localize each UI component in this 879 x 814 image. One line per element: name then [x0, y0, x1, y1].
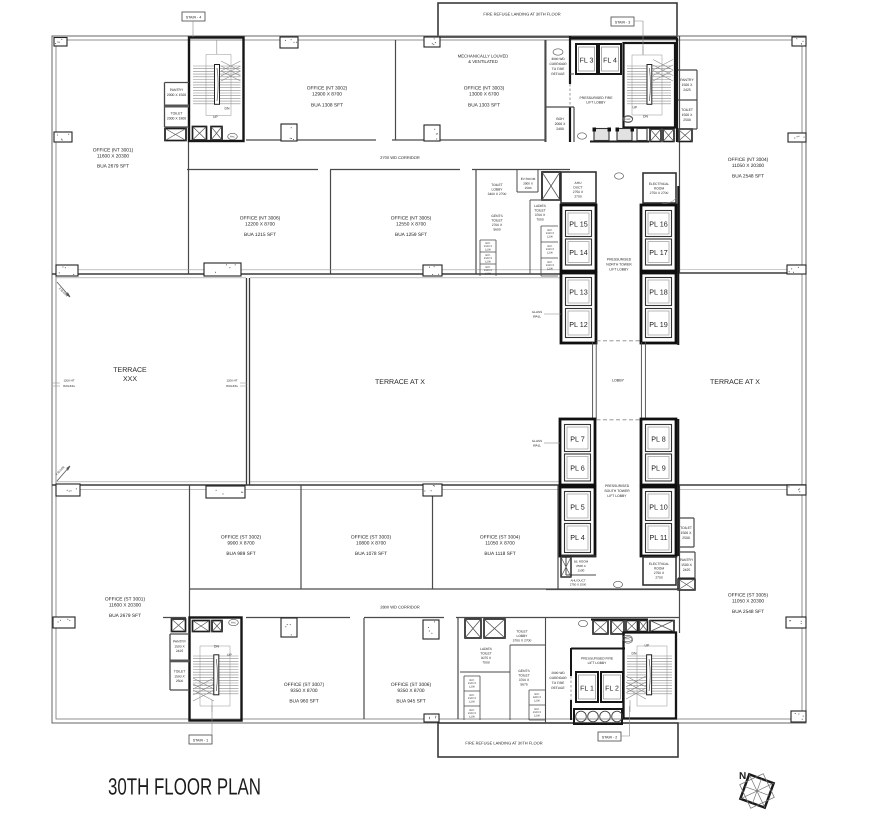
- svg-text:1200: 1200: [485, 260, 491, 263]
- svg-text:TOILET: TOILET: [491, 219, 502, 223]
- svg-text:PANTRY: PANTRY: [173, 640, 187, 644]
- svg-text:FL 4: FL 4: [603, 58, 617, 65]
- svg-text:1200: 1200: [547, 235, 553, 238]
- svg-text:PRESSURISED: PRESSURISED: [605, 484, 630, 488]
- svg-text:LOBBY: LOBBY: [612, 379, 625, 383]
- svg-text:OFFICE (NT 3004): OFFICE (NT 3004): [728, 157, 769, 163]
- svg-text:2700 WD CORRIDOR: 2700 WD CORRIDOR: [380, 155, 420, 160]
- svg-text:UP: UP: [645, 644, 650, 648]
- svg-text:LIFT LOBBY: LIFT LOBBY: [607, 494, 627, 498]
- svg-text:TOILET: TOILET: [680, 526, 692, 530]
- svg-text:3075 X: 3075 X: [481, 656, 492, 660]
- svg-text:MECHANICALLY LOUVED: MECHANICALLY LOUVED: [458, 54, 509, 59]
- svg-text:1500: 1500: [578, 569, 585, 573]
- svg-text:1200: 1200: [534, 714, 540, 717]
- svg-text:PL 5: PL 5: [570, 503, 585, 512]
- svg-text:OFFICE (ST 3003): OFFICE (ST 3003): [351, 535, 392, 541]
- svg-text:DN: DN: [225, 107, 230, 111]
- svg-text:BUA 989 SFT: BUA 989 SFT: [226, 551, 255, 557]
- svg-text:1500 X: 1500 X: [682, 113, 693, 117]
- svg-text:2800 WD CORRIDOR: 2800 WD CORRIDOR: [380, 605, 420, 610]
- svg-text:BUA 945 SFT: BUA 945 SFT: [396, 699, 425, 705]
- svg-text:PRESSURISED FIRE: PRESSURISED FIRE: [580, 96, 614, 100]
- svg-text:LIFT LOBBY: LIFT LOBBY: [609, 268, 629, 272]
- svg-text:1200 HT: 1200 HT: [226, 379, 237, 383]
- svg-text:PL 19: PL 19: [649, 320, 668, 329]
- svg-text:DN: DN: [643, 115, 648, 119]
- svg-text:1500 X: 1500 X: [174, 674, 185, 678]
- svg-text:1500 X: 1500 X: [174, 644, 185, 648]
- svg-text:GENTS: GENTS: [491, 214, 503, 218]
- svg-text:STAIR - 4: STAIR - 4: [186, 16, 202, 20]
- svg-text:WALL: WALL: [533, 444, 542, 448]
- svg-text:PL 15: PL 15: [569, 220, 588, 229]
- svg-text:BUA 1118 SFT: BUA 1118 SFT: [484, 551, 515, 557]
- svg-text:PL 7: PL 7: [570, 435, 585, 444]
- svg-text:AHU: AHU: [575, 181, 583, 185]
- svg-text:11050 X 8700: 11050 X 8700: [485, 541, 515, 547]
- svg-text:N: N: [739, 771, 746, 782]
- svg-text:2500: 2500: [682, 536, 690, 540]
- svg-text:UP: UP: [227, 653, 232, 657]
- svg-text:BUA 2548 SFT: BUA 2548 SFT: [732, 174, 764, 180]
- svg-text:1200: 1200: [547, 251, 553, 254]
- svg-text:2425: 2425: [683, 568, 691, 572]
- svg-text:FHC: FHC: [626, 118, 631, 121]
- svg-text:11600 X 20300: 11600 X 20300: [109, 603, 142, 609]
- svg-text:TOILET: TOILET: [491, 183, 502, 187]
- svg-text:XXX: XXX: [123, 376, 137, 383]
- svg-text:2750 X 1500: 2750 X 1500: [570, 583, 587, 587]
- svg-text:OFFICE (ST 3004): OFFICE (ST 3004): [480, 535, 521, 541]
- svg-text:OFFICE (ST 3006): OFFICE (ST 3006): [391, 682, 432, 688]
- svg-text:LOBBY: LOBBY: [492, 188, 504, 192]
- svg-text:OFFICE (NT 3005): OFFICE (NT 3005): [391, 216, 432, 222]
- svg-text:2400: 2400: [556, 127, 564, 131]
- svg-text:PL 10: PL 10: [649, 503, 668, 512]
- svg-text:2425: 2425: [683, 88, 691, 92]
- svg-text:BUA 1215 SFT: BUA 1215 SFT: [244, 232, 276, 238]
- svg-text:ELECTRICAL: ELECTRICAL: [649, 562, 670, 566]
- svg-text:9350 X 8700: 9350 X 8700: [397, 688, 425, 694]
- svg-text:FIRE REFUGE LANDING AT 30TH F: FIRE REFUGE LANDING AT 30TH FLOOR: [465, 741, 542, 746]
- svg-text:3000 X: 3000 X: [523, 182, 533, 186]
- svg-text:TOILET: TOILET: [174, 670, 185, 674]
- svg-text:UP: UP: [633, 106, 638, 110]
- svg-text:PL 13: PL 13: [569, 288, 588, 297]
- svg-text:2500: 2500: [683, 118, 691, 122]
- svg-text:3000 WD: 3000 WD: [551, 57, 565, 61]
- svg-text:PANTRY: PANTRY: [170, 88, 184, 92]
- svg-text:1200: 1200: [469, 685, 475, 688]
- svg-text:BUA 2679 SFT: BUA 2679 SFT: [97, 164, 129, 170]
- svg-text:RAILING: RAILING: [63, 384, 75, 388]
- svg-text:12900 X 8700: 12900 X 8700: [312, 92, 342, 98]
- svg-text:PL 16: PL 16: [649, 220, 668, 229]
- svg-text:TOILET: TOILET: [534, 209, 545, 213]
- svg-text:LADIES: LADIES: [480, 647, 493, 651]
- svg-text:3700 X 2700: 3700 X 2700: [513, 639, 532, 643]
- svg-text:UP: UP: [213, 115, 218, 119]
- svg-text:12550 X 8700: 12550 X 8700: [396, 222, 426, 228]
- svg-text:TOILET: TOILET: [518, 674, 529, 678]
- svg-text:PANTRY: PANTRY: [680, 78, 694, 82]
- svg-text:BUA 1078 SFT: BUA 1078 SFT: [355, 551, 387, 557]
- svg-text:9350 X 8700: 9350 X 8700: [290, 688, 318, 694]
- svg-text:FHC: FHC: [230, 136, 235, 139]
- svg-text:30TH FLOOR PLAN: 30TH FLOOR PLAN: [108, 774, 261, 800]
- svg-text:12200 X 8700: 12200 X 8700: [245, 222, 275, 228]
- svg-text:TO FIRE: TO FIRE: [552, 67, 565, 71]
- svg-text:EV ROOM: EV ROOM: [521, 177, 536, 181]
- svg-text:PL 14: PL 14: [569, 248, 588, 257]
- svg-text:FHC: FHC: [625, 638, 630, 641]
- svg-text:2700 X: 2700 X: [492, 223, 503, 227]
- svg-text:BUA 1259 SFT: BUA 1259 SFT: [395, 232, 427, 238]
- svg-text:CORRIDOR: CORRIDOR: [549, 676, 567, 680]
- svg-text:PANTRY: PANTRY: [680, 558, 694, 562]
- svg-text:1200: 1200: [469, 715, 475, 718]
- svg-text:LIFT LOBBY: LIFT LOBBY: [586, 101, 606, 105]
- svg-text:DN: DN: [632, 652, 637, 656]
- svg-text:2000 X: 2000 X: [555, 122, 566, 126]
- svg-text:OFFICE (NT 3001): OFFICE (NT 3001): [93, 148, 134, 154]
- svg-text:1500: 1500: [525, 186, 532, 190]
- svg-text:TOILET: TOILET: [681, 108, 693, 112]
- svg-text:WALL: WALL: [533, 315, 542, 319]
- svg-text:PL 18: PL 18: [649, 288, 668, 297]
- svg-text:FHC: FHC: [231, 622, 236, 625]
- svg-text:TOILET: TOILET: [480, 652, 491, 656]
- svg-text:PL 11: PL 11: [650, 533, 668, 542]
- svg-text:PRESSURISED: PRESSURISED: [607, 258, 632, 262]
- svg-text:SOUTH TOWER: SOUTH TOWER: [604, 489, 630, 493]
- svg-text:2425: 2425: [176, 649, 184, 653]
- svg-text:7000: 7000: [482, 661, 490, 665]
- svg-text:9900 X 8700: 9900 X 8700: [227, 541, 255, 547]
- svg-text:BUA 1303 SFT: BUA 1303 SFT: [468, 103, 500, 109]
- svg-text:STAIR - 1: STAIR - 1: [193, 739, 209, 743]
- svg-text:1200 HT: 1200 HT: [63, 379, 74, 383]
- svg-text:FIRE REFUGE LANDING AT 30TH FL: FIRE REFUGE LANDING AT 30TH FLOOR: [483, 12, 560, 17]
- svg-text:BUA 2679 SFT: BUA 2679 SFT: [109, 613, 141, 619]
- svg-text:LIFT LOBBY: LIFT LOBBY: [588, 661, 607, 665]
- svg-text:5675: 5675: [520, 683, 528, 687]
- svg-text:3700 X: 3700 X: [519, 678, 530, 682]
- svg-text:DUCT: DUCT: [573, 186, 582, 190]
- svg-text:2750 X: 2750 X: [573, 190, 584, 194]
- svg-text:FL 2: FL 2: [605, 686, 619, 693]
- svg-text:1200: 1200: [547, 267, 553, 270]
- svg-text:GENTS: GENTS: [518, 669, 530, 673]
- svg-text:GLASS: GLASS: [532, 439, 542, 443]
- svg-text:REFUGE: REFUGE: [551, 686, 564, 690]
- svg-text:2500: 2500: [176, 679, 184, 683]
- svg-text:2000 WD: 2000 WD: [551, 671, 565, 675]
- svg-text:FL 3: FL 3: [580, 58, 594, 65]
- svg-text:1200: 1200: [485, 248, 491, 251]
- svg-text:2000 X 1800: 2000 X 1800: [167, 117, 186, 121]
- svg-text:2000 X 1500: 2000 X 1500: [167, 93, 186, 97]
- svg-text:DN: DN: [214, 645, 219, 649]
- svg-text:11050 X 20300: 11050 X 20300: [732, 163, 765, 169]
- svg-text:TERRACE AT X: TERRACE AT X: [375, 379, 425, 386]
- svg-text:11050 X 20300: 11050 X 20300: [732, 599, 765, 605]
- svg-text:11600 X 20300: 11600 X 20300: [97, 154, 130, 160]
- svg-text:2700: 2700: [574, 195, 582, 199]
- svg-text:7000: 7000: [536, 218, 544, 222]
- svg-text:TERRACE: TERRACE: [113, 367, 147, 374]
- svg-text:1500 X: 1500 X: [682, 83, 693, 87]
- svg-text:STAIR - 2: STAIR - 2: [602, 736, 618, 740]
- svg-text:NORTH TOWER: NORTH TOWER: [606, 263, 632, 267]
- svg-text:BUA 2548 SFT: BUA 2548 SFT: [732, 609, 764, 615]
- svg-text:1200: 1200: [469, 700, 475, 703]
- svg-text:PL 17: PL 17: [649, 248, 668, 257]
- svg-text:BE ROOM: BE ROOM: [574, 560, 589, 564]
- svg-text:13000 X 6700: 13000 X 6700: [469, 92, 499, 98]
- svg-text:1200: 1200: [534, 699, 540, 702]
- svg-text:5600: 5600: [493, 228, 501, 232]
- svg-text:OFFICE (NT 3002): OFFICE (NT 3002): [307, 86, 348, 92]
- svg-text:OFFICE (ST 3005): OFFICE (ST 3005): [728, 593, 769, 599]
- svg-text:FL 1: FL 1: [580, 686, 594, 693]
- svg-text:PL 12: PL 12: [569, 320, 588, 329]
- svg-text:2700: 2700: [655, 576, 663, 580]
- svg-text:10800 X 8700: 10800 X 8700: [356, 541, 386, 547]
- svg-text:2750 X: 2750 X: [654, 571, 665, 575]
- svg-text:BOH: BOH: [556, 117, 564, 121]
- svg-text:TOILET: TOILET: [171, 112, 183, 116]
- svg-text:1500 X: 1500 X: [681, 563, 692, 567]
- svg-text:STAIR - 3: STAIR - 3: [615, 21, 631, 25]
- svg-text:3400 X 2700: 3400 X 2700: [488, 192, 507, 196]
- svg-text:PRESSURISED FIRE: PRESSURISED FIRE: [581, 657, 614, 661]
- svg-text:RAILING: RAILING: [226, 384, 238, 388]
- svg-text:PL 9: PL 9: [651, 464, 666, 473]
- svg-text:& VENTILATED: & VENTILATED: [468, 59, 497, 64]
- svg-text:PL 8: PL 8: [651, 435, 666, 444]
- svg-text:BUA 1308 SFT: BUA 1308 SFT: [311, 103, 343, 109]
- svg-text:OFFICE (ST 3001): OFFICE (ST 3001): [105, 597, 146, 603]
- svg-text:TO FIRE: TO FIRE: [552, 681, 565, 685]
- svg-text:PL 4: PL 4: [570, 533, 585, 542]
- svg-text:OFFICE (NT 3006): OFFICE (NT 3006): [240, 216, 281, 222]
- svg-text:2500 X: 2500 X: [576, 564, 586, 568]
- svg-text:ROOM: ROOM: [654, 567, 665, 571]
- svg-text:REFUGE: REFUGE: [551, 72, 564, 76]
- svg-text:TOILET: TOILET: [516, 630, 527, 634]
- svg-text:GLASS: GLASS: [532, 310, 542, 314]
- svg-text:PL 6: PL 6: [570, 464, 585, 473]
- svg-text:OFFICE (ST 3007): OFFICE (ST 3007): [284, 682, 325, 688]
- svg-text:TERRACE AT X: TERRACE AT X: [710, 379, 760, 386]
- svg-text:1200: 1200: [485, 272, 491, 275]
- svg-text:LADIES: LADIES: [534, 204, 547, 208]
- svg-text:ROOM: ROOM: [654, 187, 665, 191]
- svg-text:LOBBY: LOBBY: [517, 634, 529, 638]
- svg-text:OFFICE (ST 3002): OFFICE (ST 3002): [221, 535, 262, 541]
- svg-text:1500 X: 1500 X: [681, 531, 692, 535]
- svg-text:BUA 960 SFT: BUA 960 SFT: [289, 699, 318, 705]
- svg-text:CORRIDOR: CORRIDOR: [549, 62, 567, 66]
- svg-text:OFFICE (NT 3003): OFFICE (NT 3003): [464, 86, 505, 92]
- svg-text:2750 X 2700: 2750 X 2700: [650, 191, 669, 195]
- svg-text:ELECTRICAL: ELECTRICAL: [649, 182, 670, 186]
- svg-text:3700 X: 3700 X: [535, 213, 546, 217]
